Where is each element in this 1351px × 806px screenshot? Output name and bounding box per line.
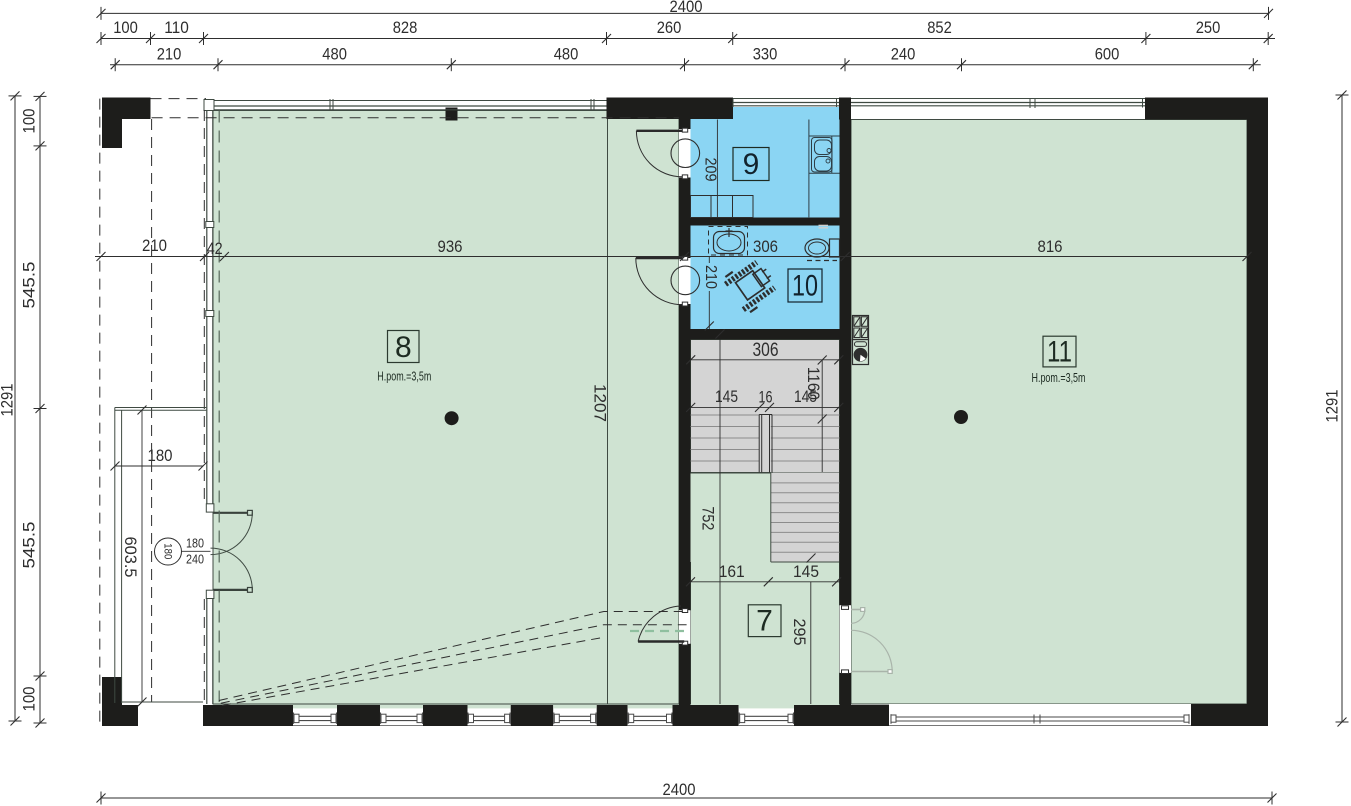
svg-text:828: 828 (393, 19, 418, 37)
svg-text:145: 145 (794, 387, 817, 406)
svg-text:9: 9 (743, 148, 760, 181)
svg-text:545.5: 545.5 (21, 262, 39, 309)
svg-text:180: 180 (148, 447, 173, 465)
svg-text:240: 240 (891, 46, 916, 64)
svg-text:161: 161 (719, 562, 745, 581)
svg-text:600: 600 (1095, 46, 1120, 64)
svg-text:306: 306 (753, 340, 779, 361)
svg-text:295: 295 (790, 619, 809, 646)
svg-text:936: 936 (438, 238, 463, 256)
svg-text:752: 752 (699, 506, 718, 530)
svg-text:180: 180 (162, 543, 174, 559)
svg-text:210: 210 (702, 265, 719, 289)
svg-text:2400: 2400 (663, 781, 696, 799)
svg-text:2400: 2400 (670, 0, 703, 16)
svg-text:110: 110 (164, 19, 189, 37)
svg-text:10: 10 (792, 270, 818, 303)
svg-text:8: 8 (395, 331, 412, 364)
svg-text:1291: 1291 (0, 384, 17, 417)
svg-text:545.5: 545.5 (21, 522, 39, 569)
svg-text:330: 330 (753, 46, 778, 64)
svg-text:480: 480 (554, 46, 579, 64)
svg-text:210: 210 (142, 237, 167, 255)
svg-text:180: 180 (186, 537, 204, 551)
svg-text:210: 210 (157, 46, 182, 64)
svg-text:145: 145 (715, 387, 738, 406)
svg-text:100: 100 (113, 19, 138, 37)
svg-text:1207: 1207 (591, 384, 609, 422)
svg-text:480: 480 (322, 46, 347, 64)
svg-text:260: 260 (657, 19, 682, 37)
svg-text:42: 42 (207, 240, 223, 258)
svg-text:16: 16 (759, 388, 773, 407)
svg-text:H.pom.=3,5m: H.pom.=3,5m (377, 369, 431, 384)
svg-text:306: 306 (753, 238, 778, 256)
svg-text:145: 145 (793, 562, 819, 581)
svg-text:816: 816 (1038, 238, 1063, 256)
svg-text:603.5: 603.5 (121, 537, 139, 578)
svg-text:209: 209 (702, 158, 719, 182)
svg-text:852: 852 (927, 19, 952, 37)
svg-text:1291: 1291 (1324, 390, 1342, 423)
svg-text:100: 100 (21, 687, 39, 712)
svg-text:7: 7 (756, 605, 773, 638)
svg-text:240: 240 (186, 553, 204, 567)
svg-text:250: 250 (1196, 19, 1221, 37)
svg-text:H.pom.=3,5m: H.pom.=3,5m (1032, 370, 1086, 385)
svg-text:100: 100 (21, 109, 39, 134)
svg-text:11: 11 (1047, 336, 1072, 369)
